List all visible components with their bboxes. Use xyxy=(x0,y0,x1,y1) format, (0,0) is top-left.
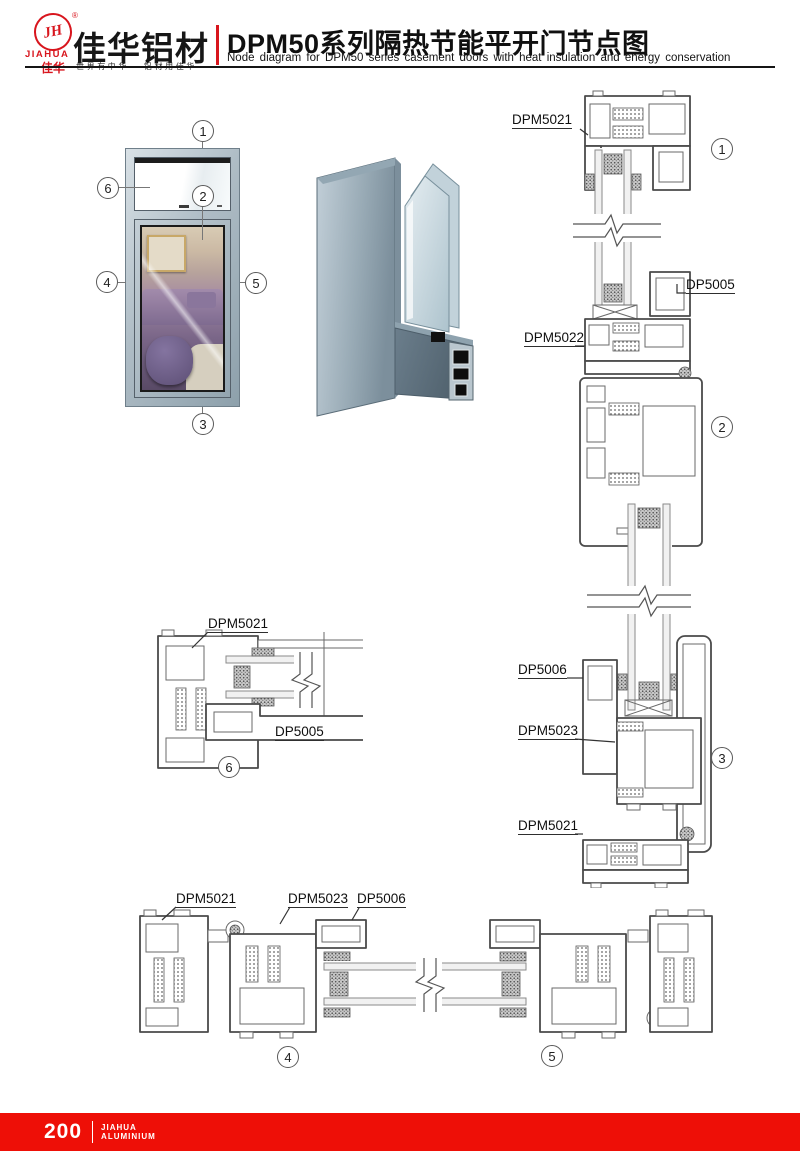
door-glass-photo xyxy=(140,225,225,392)
footer-brand-line1: JIAHUA xyxy=(101,1123,156,1132)
detail-6-glass xyxy=(224,648,300,706)
elevation-callout-5: 5 xyxy=(245,272,267,294)
section-5-right-frame xyxy=(650,910,712,1032)
horizontal-section-drawing xyxy=(128,886,728,1066)
header-rule xyxy=(25,66,775,68)
elevation-callout-4: 4 xyxy=(96,271,118,293)
footer-brand: JIAHUA ALUMINIUM xyxy=(101,1123,156,1141)
callout-leader xyxy=(202,142,203,148)
label-sash: DPM5023 xyxy=(518,723,578,740)
section-callout-4: 4 xyxy=(277,1046,299,1068)
label-leader xyxy=(280,907,290,924)
page-number: 200 xyxy=(44,1120,82,1144)
registered-mark: ® xyxy=(72,11,78,20)
label-detail6-sill: DP5005 xyxy=(275,724,324,741)
section-callout-2: 2 xyxy=(711,416,733,438)
footer-bar: 200 JIAHUA ALUMINIUM xyxy=(0,1113,800,1151)
elevation-callout-1: 1 xyxy=(192,120,214,142)
label-transom-bottom: DPM5022 xyxy=(524,330,584,347)
footer-divider xyxy=(92,1121,93,1143)
elevation-callout-6: 6 xyxy=(97,177,119,199)
transom-window xyxy=(134,157,231,211)
jiahua-logo-emblem: JH xyxy=(30,9,75,54)
profile-3d-render xyxy=(293,142,493,432)
callout-leader xyxy=(118,282,126,283)
section-callout-5: 5 xyxy=(541,1045,563,1067)
door-leaf xyxy=(134,219,231,398)
transom-latch-2 xyxy=(217,205,222,207)
elevation-callout-3: 3 xyxy=(192,413,214,435)
transom-latch xyxy=(179,205,189,208)
section-callout-1: 1 xyxy=(711,138,733,160)
break-symbol-door-glass xyxy=(585,586,693,616)
section-3-bottom-frame xyxy=(583,840,688,888)
label-detail6-frame: DPM5021 xyxy=(208,616,268,633)
catalog-page: .p{fill:#fff;stroke:#4a4a4a;stroke-width… xyxy=(0,0,800,1167)
label-bottom-frame: DPM5021 xyxy=(518,818,578,835)
label-bottom-sash: DPM5023 xyxy=(288,891,348,908)
elevation-callout-2: 2 xyxy=(192,185,214,207)
callout-leader xyxy=(119,187,150,188)
label-transom-sill: DP5005 xyxy=(686,277,735,294)
label-head-frame: DPM5021 xyxy=(512,112,572,129)
section-callout-6: 6 xyxy=(218,756,240,778)
break-symbol-horizontal-glass xyxy=(416,956,444,1012)
footer-brand-line2: ALUMINIUM xyxy=(101,1132,156,1141)
glass-reflection xyxy=(142,227,223,390)
label-bottom-left-frame: DPM5021 xyxy=(176,891,236,908)
label-door-bottom: DP5006 xyxy=(518,662,567,679)
section-callout-3: 3 xyxy=(711,747,733,769)
break-symbol-transom xyxy=(571,214,665,246)
label-bottom-door: DP5006 xyxy=(357,891,406,908)
page-subtitle: Node diagram for DPM50 series casement d… xyxy=(227,52,747,64)
section-4-left-frame xyxy=(140,910,244,1032)
callout-leader xyxy=(202,207,203,240)
header-divider xyxy=(216,25,219,65)
label-leader xyxy=(352,908,359,920)
